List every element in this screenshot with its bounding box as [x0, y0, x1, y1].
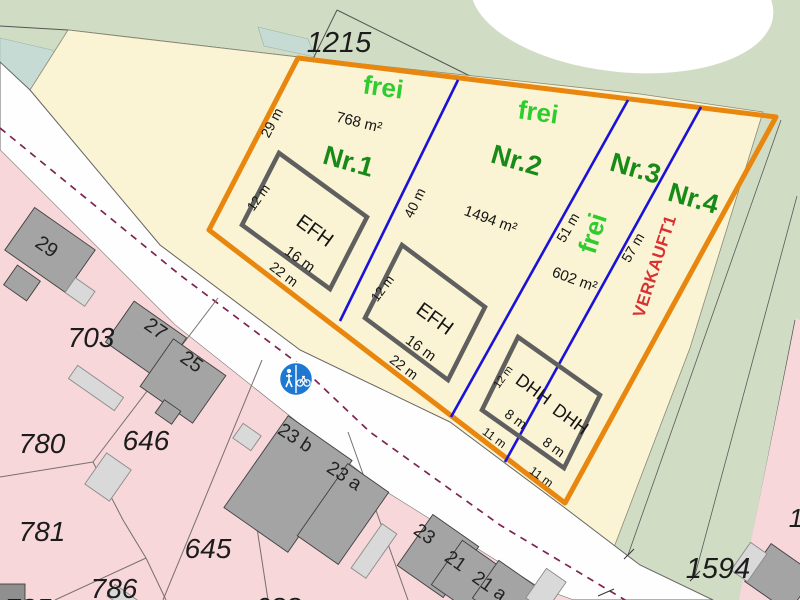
parcel-645-label: 645 — [185, 533, 232, 564]
parcel-688-label: 688 — [255, 592, 302, 600]
parcel-703-label: 703 — [68, 322, 115, 353]
parcel-781-label: 781 — [19, 516, 66, 547]
plot1-status-label: frei — [361, 69, 405, 104]
pedestrian-bike-sign-icon — [280, 363, 313, 396]
map-canvas: 1215 703 780 781 646 645 786 785 688 159… — [0, 0, 800, 600]
parcel-1594-label: 1594 — [686, 553, 751, 585]
parcel-646-label: 646 — [123, 425, 170, 456]
parcel-786-label: 786 — [91, 573, 138, 600]
site-plan-map: 1215 703 780 781 646 645 786 785 688 159… — [0, 0, 800, 600]
parcel-1215-label: 1215 — [307, 27, 372, 59]
parcel-partial-label: 1 — [789, 503, 800, 533]
parcel-785-label: 785 — [5, 593, 52, 600]
plot2-status-label: frei — [516, 94, 560, 129]
parcel-780-label: 780 — [19, 428, 66, 459]
